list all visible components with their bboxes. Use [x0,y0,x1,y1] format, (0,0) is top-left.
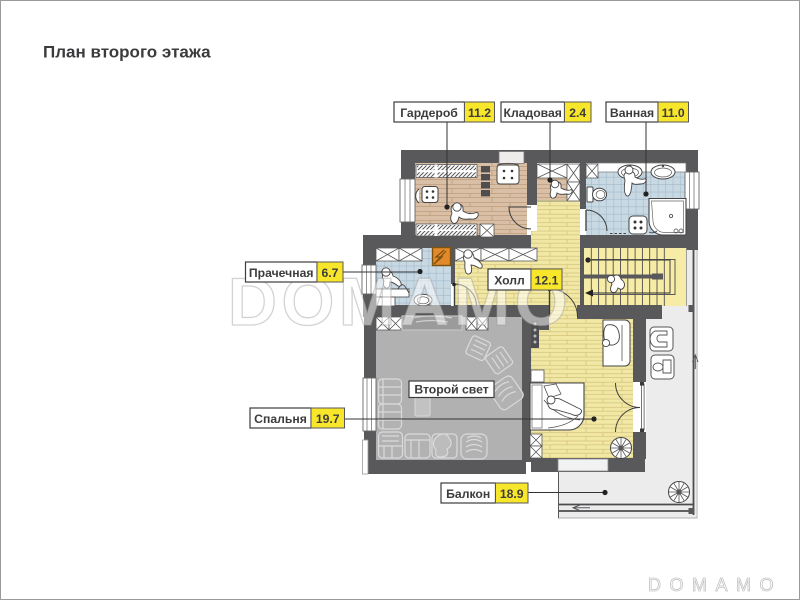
svg-text:Прачечная: Прачечная [249,266,314,280]
svg-text:Холл: Холл [494,273,525,287]
svg-text:Кладовая: Кладовая [504,106,562,120]
svg-text:Ванная: Ванная [610,106,654,120]
svg-text:Спальня: Спальня [254,412,307,426]
svg-text:Балкон: Балкон [446,487,490,501]
svg-text:11.2: 11.2 [468,106,491,120]
svg-text:План второго этажа: План второго этажа [43,43,211,62]
svg-text:DOMAMO: DOMAMO [648,575,782,595]
svg-text:Гардероб: Гардероб [400,106,458,120]
svg-text:6.7: 6.7 [322,266,339,280]
svg-text:19.7: 19.7 [316,412,340,426]
svg-text:Второй свет: Второй свет [414,383,488,397]
svg-text:11.0: 11.0 [662,106,685,120]
svg-text:12.1: 12.1 [535,273,559,287]
svg-text:2.4: 2.4 [569,106,586,120]
svg-text:18.9: 18.9 [500,487,524,501]
